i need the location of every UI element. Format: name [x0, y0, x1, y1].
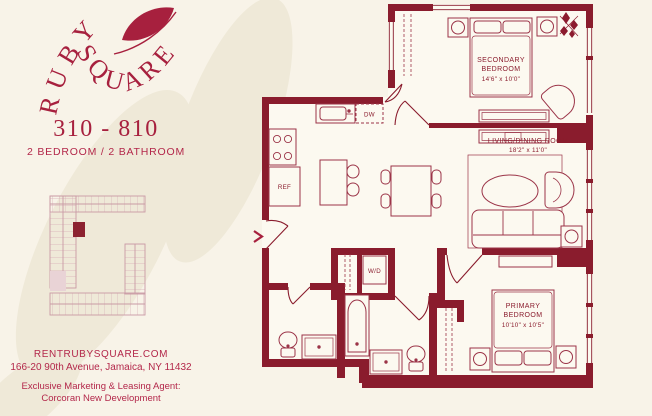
side-table-icon: [561, 226, 582, 247]
pillow-icon: [503, 21, 530, 33]
floorplan-drawing: SECONDARY BEDROOM 14'6" x 10'0" LIVING/D…: [252, 0, 652, 416]
pillow-icon: [524, 351, 551, 365]
unit-type-label: 2 BEDROOM / 2 BATHROOM: [0, 146, 212, 158]
stool-icon: [347, 165, 359, 178]
svg-text:BEDROOM: BEDROOM: [504, 312, 543, 319]
unit-number-range: 310 - 810: [0, 116, 212, 143]
living-dining-dims: 18'2" x 11'0": [509, 147, 547, 154]
entry-arrow-icon: [254, 231, 262, 242]
agent-label-text: Exclusive Marketing & Leasing Agent:: [0, 381, 202, 392]
logo-word-square: SQUARE: [71, 36, 183, 98]
secondary-bedroom-dims: 14'6" x 10'0": [482, 76, 520, 83]
website-text: RENTRUBYSQUARE.COM: [0, 349, 202, 360]
ruby-square-logo: RUBY SQUARE: [22, 0, 232, 126]
dresser-icon: [499, 256, 552, 267]
vanity-sink-icon: [370, 350, 402, 374]
agent-name-text: Corcoran New Development: [0, 393, 202, 404]
primary-bedroom-label: PRIMARY: [506, 303, 541, 310]
bathtub-icon: [345, 295, 369, 356]
dishwasher-label: DW: [364, 112, 375, 119]
primary-bedroom-dims: 10'10" x 10'5": [502, 322, 544, 329]
dresser-icon: [479, 110, 549, 122]
svg-text:BEDROOM: BEDROOM: [482, 66, 521, 73]
pillow-icon: [495, 351, 522, 365]
keyplan-lobby-block: [50, 271, 66, 291]
building-keyplan: [33, 192, 165, 324]
floorplan-flyer: { "logo": { "ruby": "RUBY", "square": "S…: [0, 0, 652, 416]
washer-dryer-label: W/D: [368, 268, 381, 275]
keyplan-highlighted-unit: [73, 222, 85, 237]
dining-chair-icon: [381, 194, 390, 208]
secondary-bedroom-label: SECONDARY: [477, 57, 525, 64]
range-icon: [269, 129, 296, 165]
living-dining-label: LIVING/DINING ROOM: [488, 138, 568, 145]
pillow-icon: [474, 21, 501, 33]
bathroom1-fixtures: [279, 332, 336, 359]
dining-chair-icon: [432, 170, 441, 184]
vanity-sink-icon: [302, 335, 336, 359]
coffee-table-icon: [482, 175, 538, 207]
toilet-icon: [407, 346, 425, 371]
stool-icon: [347, 183, 359, 196]
refrigerator-label: REF: [278, 184, 291, 191]
sofa-icon: [472, 210, 564, 248]
kitchen-island-icon: [320, 160, 347, 205]
dining-chair-icon: [381, 170, 390, 184]
dining-chair-icon: [432, 194, 441, 208]
toilet-icon: [279, 332, 297, 357]
address-text: 166-20 90th Avenue, Jamaica, NY 11432: [0, 362, 202, 373]
dining-table-icon: [391, 166, 431, 216]
